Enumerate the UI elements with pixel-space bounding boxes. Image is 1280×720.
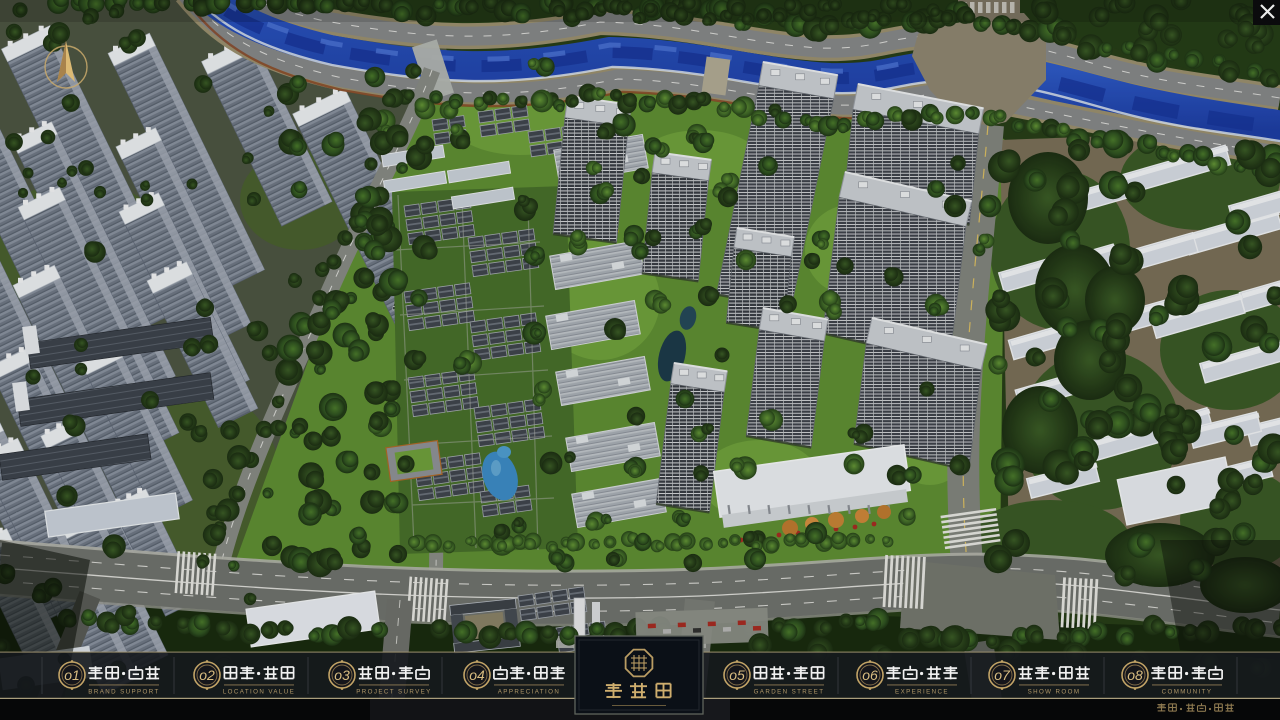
svg-text:o4: o4 [469, 667, 485, 683]
svg-text:o2: o2 [199, 667, 215, 683]
svg-text:APPRECIATION: APPRECIATION [498, 689, 560, 696]
svg-text:GARDEN STREET: GARDEN STREET [754, 689, 825, 696]
svg-text:o5: o5 [729, 667, 745, 683]
svg-text:o1: o1 [64, 667, 80, 683]
svg-text:PROJECT SURVEY: PROJECT SURVEY [356, 689, 431, 696]
svg-text:o7: o7 [994, 667, 1011, 683]
svg-text:o3: o3 [334, 667, 350, 683]
svg-text:EXPERIENCE: EXPERIENCE [895, 689, 949, 696]
svg-text:o8: o8 [1127, 667, 1143, 683]
svg-text:BRAND SUPPORT: BRAND SUPPORT [88, 689, 159, 696]
svg-text:o6: o6 [862, 667, 878, 683]
svg-text:SHOW ROOM: SHOW ROOM [1028, 689, 1081, 696]
svg-text:LOCATION VALUE: LOCATION VALUE [223, 689, 295, 696]
svg-text:COMMUNITY: COMMUNITY [1162, 689, 1213, 696]
